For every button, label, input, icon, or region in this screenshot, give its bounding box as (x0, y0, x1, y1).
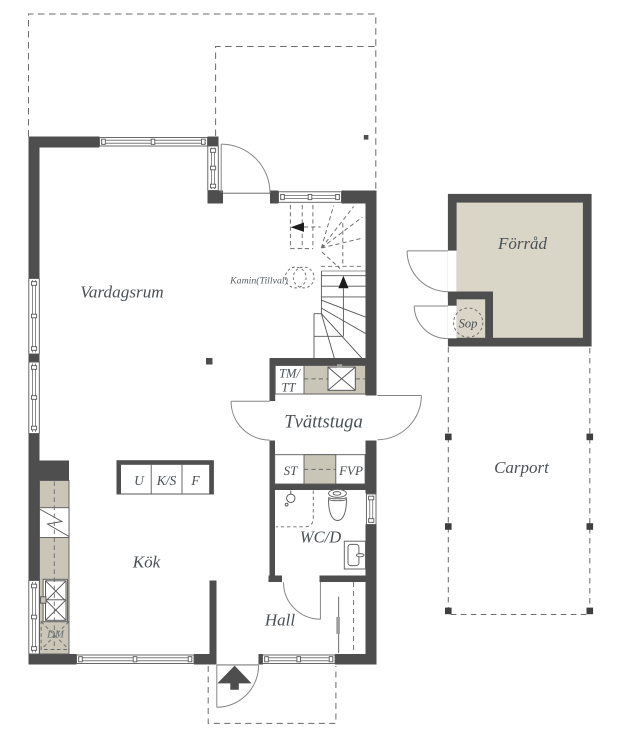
svg-text:U: U (134, 473, 145, 488)
svg-text:WC/D: WC/D (300, 528, 341, 547)
svg-text:Tvättstuga: Tvättstuga (284, 412, 363, 433)
svg-text:F: F (190, 473, 200, 488)
svg-text:Förråd: Förråd (497, 234, 548, 253)
svg-text:TM/: TM/ (279, 367, 301, 381)
svg-text:FVP: FVP (338, 463, 363, 478)
svg-text:Sop: Sop (459, 317, 478, 331)
svg-text:Kök: Kök (132, 553, 161, 572)
svg-text:Kamin(Tillval): Kamin(Tillval) (229, 276, 288, 287)
svg-text:Vardagsrum: Vardagsrum (80, 283, 163, 302)
svg-text:TT: TT (282, 381, 297, 395)
svg-text:K/S: K/S (156, 473, 177, 488)
svg-text:Hall: Hall (264, 611, 296, 630)
svg-text:Carport: Carport (494, 458, 550, 477)
svg-text:ST: ST (284, 463, 299, 478)
svg-text:DM: DM (46, 629, 65, 641)
